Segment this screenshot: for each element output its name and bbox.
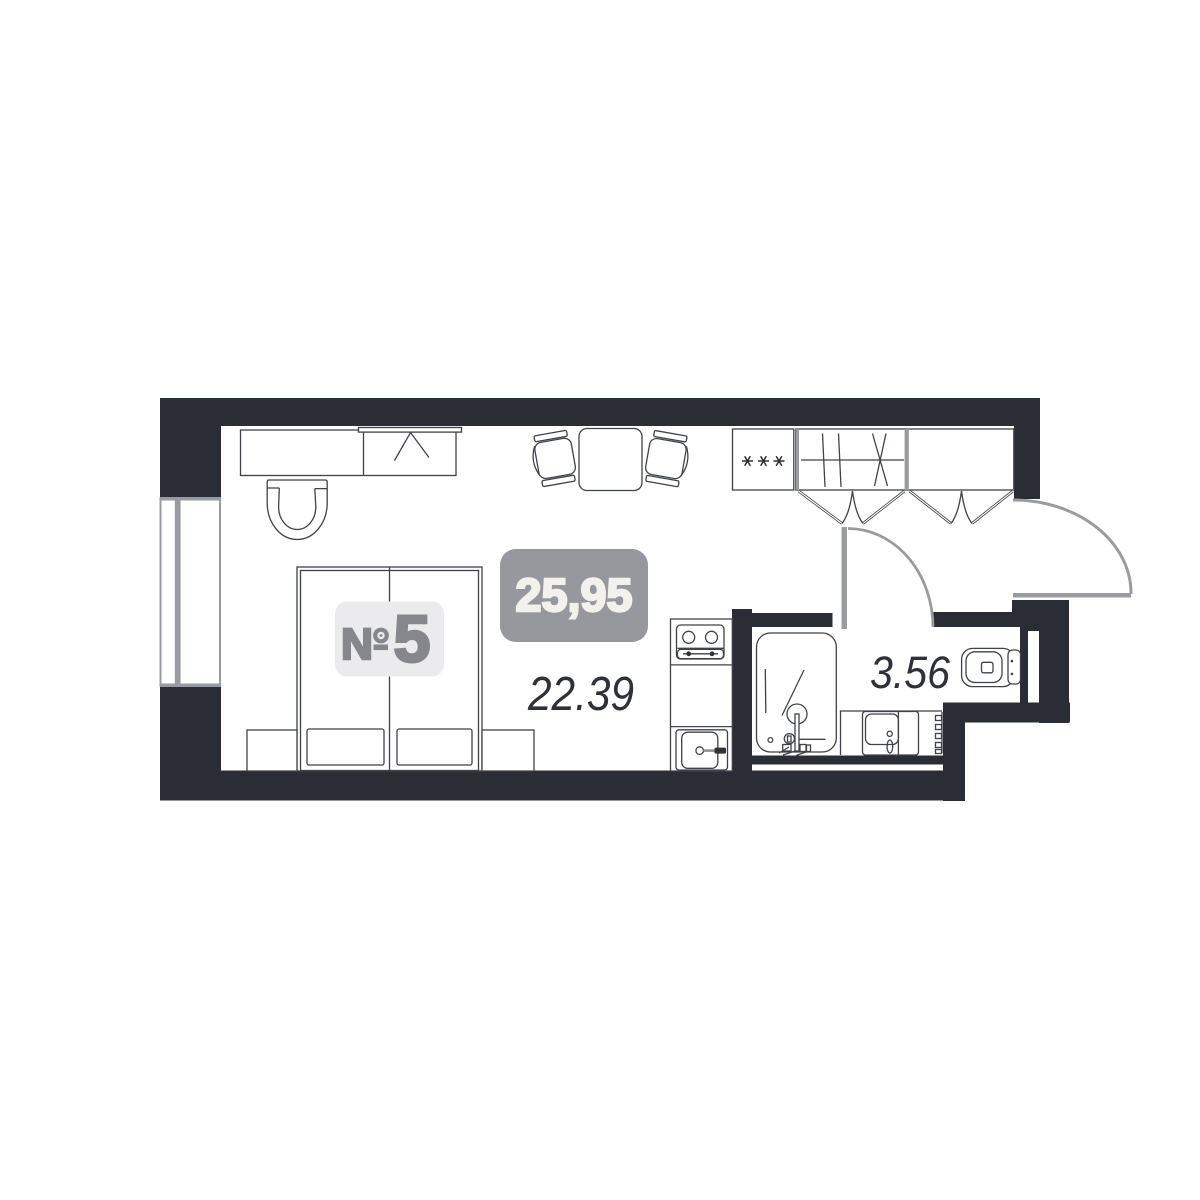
svg-text:5: 5	[394, 602, 431, 676]
svg-text:25,95: 25,95	[516, 569, 633, 621]
svg-text:N: N	[341, 620, 373, 669]
svg-text:3.56: 3.56	[870, 647, 951, 698]
svg-text:22.39: 22.39	[527, 667, 634, 721]
